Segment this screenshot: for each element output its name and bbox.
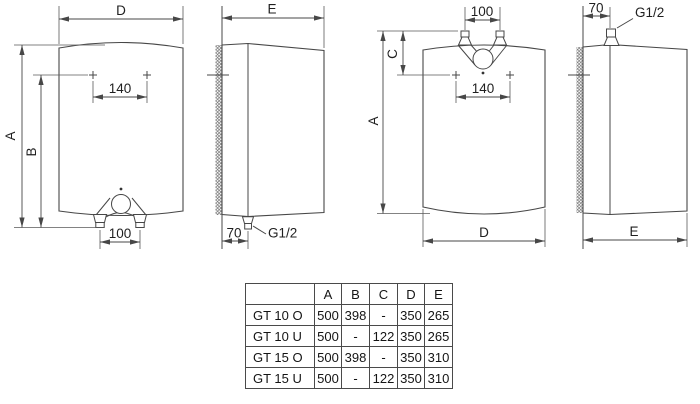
leader-line [617,19,633,29]
value-cell: - [342,326,370,347]
dim-label-pipe-spacing: 100 [471,4,494,19]
table-row-gt10u: GT 10 U 500 - 122 350 265 [246,326,453,347]
value-cell: 122 [370,368,398,389]
value-cell: 310 [425,347,453,368]
valve-dot [120,188,123,191]
dimension-width-D: D [423,209,545,247]
dim-label-depth-E: E [267,2,276,17]
dim-label-height-A: A [3,131,18,140]
thread-label: G1/2 [268,226,297,241]
dim-label-width-D: D [116,3,126,18]
valve-knob [112,195,131,214]
dimension-depth-E: E [222,2,324,49]
value-cell: 310 [425,368,453,389]
dim-label-depth-E: E [629,224,638,239]
value-cell: 350 [398,368,425,389]
value-cell: 265 [425,305,453,326]
dim-label-wall-offset: 70 [588,1,603,16]
value-cell: 350 [398,305,425,326]
value-cell: 350 [398,347,425,368]
pipe-fitting-side [604,29,619,46]
dim-label-pipe-spacing: 100 [109,226,132,241]
side-view-over-sink: E 70 G1/2 [207,2,324,250]
dim-label-mount-spacing: 140 [109,81,132,96]
table-header-A: A [315,284,342,305]
value-cell: - [370,347,398,368]
valve-dot [482,72,485,75]
table-header-row: A B C D E [246,284,453,305]
wall-hatch [216,45,223,215]
value-cell: 500 [315,326,342,347]
value-cell: 500 [315,305,342,326]
technical-drawing-page: D A B 140 100 [0,0,700,404]
value-cell: 265 [425,326,453,347]
dim-label-mount-spacing: 140 [472,81,495,96]
dim-label-top-offset-C: C [385,49,400,59]
tank-side-outline [222,44,324,217]
value-cell: 122 [370,326,398,347]
pipe-fitting-side [243,217,254,229]
value-cell: - [370,305,398,326]
thread-label: G1/2 [635,5,664,20]
table-row-gt15o: GT 15 O 500 398 - 350 310 [246,347,453,368]
dim-label-mount-height-B: B [24,147,39,156]
table-header-E: E [425,284,453,305]
dimension-wall-offset-70: 70 [583,1,610,29]
value-cell: 398 [342,305,370,326]
table-row-gt10o: GT 10 O 500 398 - 350 265 [246,305,453,326]
table-row-gt15u: GT 15 U 500 - 122 350 310 [246,368,453,389]
table-header-C: C [370,284,398,305]
side-view-under-sink: 70 G1/2 E [568,1,687,250]
pipe-fitting-left [459,31,472,45]
dim-label-width-D: D [479,225,489,240]
front-view-over-sink: D A B 140 100 [3,3,183,249]
value-cell: 398 [342,347,370,368]
pipe-fitting-left [94,215,107,228]
dim-label-height-A: A [366,116,381,125]
table-header-B: B [342,284,370,305]
dimension-depth-E: E [583,213,687,247]
pipe-fitting-right [494,31,507,45]
spec-table: A B C D E GT 10 O 500 398 - 350 265 GT 1… [245,283,453,389]
value-cell: 500 [315,347,342,368]
tank-side-outline [583,45,687,215]
dimension-pipe-spacing-100: 100 [465,4,500,30]
thread-callout: G1/2 [617,5,664,28]
table-header-model [246,284,315,305]
value-cell: 500 [315,368,342,389]
dimension-pipe-spacing-100: 100 [100,226,140,249]
tank-body-outline [423,45,545,214]
model-cell: GT 10 O [246,305,315,326]
dim-label-wall-offset: 70 [226,226,241,241]
table-header-D: D [398,284,425,305]
wall-hatch [577,47,584,213]
value-cell: - [342,368,370,389]
leader-line [253,226,266,234]
dimension-wall-offset-70: 70 [222,226,248,250]
model-cell: GT 15 O [246,347,315,368]
valve-knob [473,49,493,69]
model-cell: GT 10 U [246,326,315,347]
front-view-under-sink: 100 C A 140 D [366,4,545,247]
model-cell: GT 15 U [246,368,315,389]
dimension-width-D: D [59,3,183,44]
thread-callout: G1/2 [253,226,297,241]
pipe-fitting-right [134,215,147,228]
value-cell: 350 [398,326,425,347]
